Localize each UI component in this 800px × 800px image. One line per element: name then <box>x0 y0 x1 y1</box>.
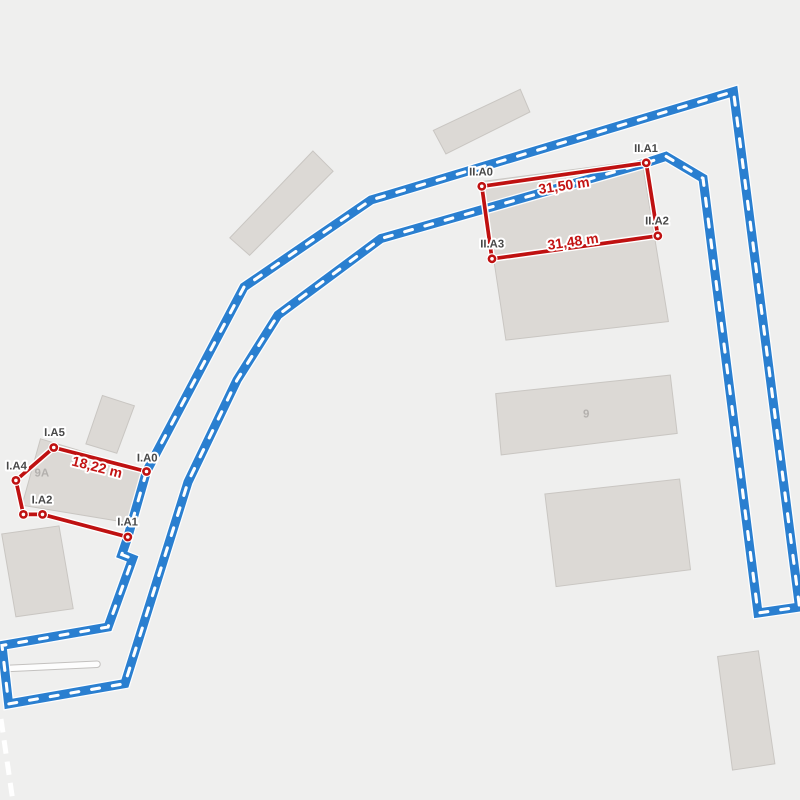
svg-text:II.A0: II.A0 <box>469 167 493 179</box>
svg-text:I.A2: I.A2 <box>32 494 53 506</box>
svg-text:II.A2: II.A2 <box>645 216 669 228</box>
svg-text:9A: 9A <box>35 468 50 480</box>
svg-text:II.A3: II.A3 <box>480 239 504 251</box>
svg-text:9: 9 <box>583 409 589 421</box>
svg-text:I.A4: I.A4 <box>6 461 27 473</box>
svg-text:I.A5: I.A5 <box>44 427 65 439</box>
svg-text:I.A1: I.A1 <box>117 516 138 528</box>
svg-text:II.A1: II.A1 <box>634 143 658 155</box>
svg-text:I.A0: I.A0 <box>137 452 158 464</box>
